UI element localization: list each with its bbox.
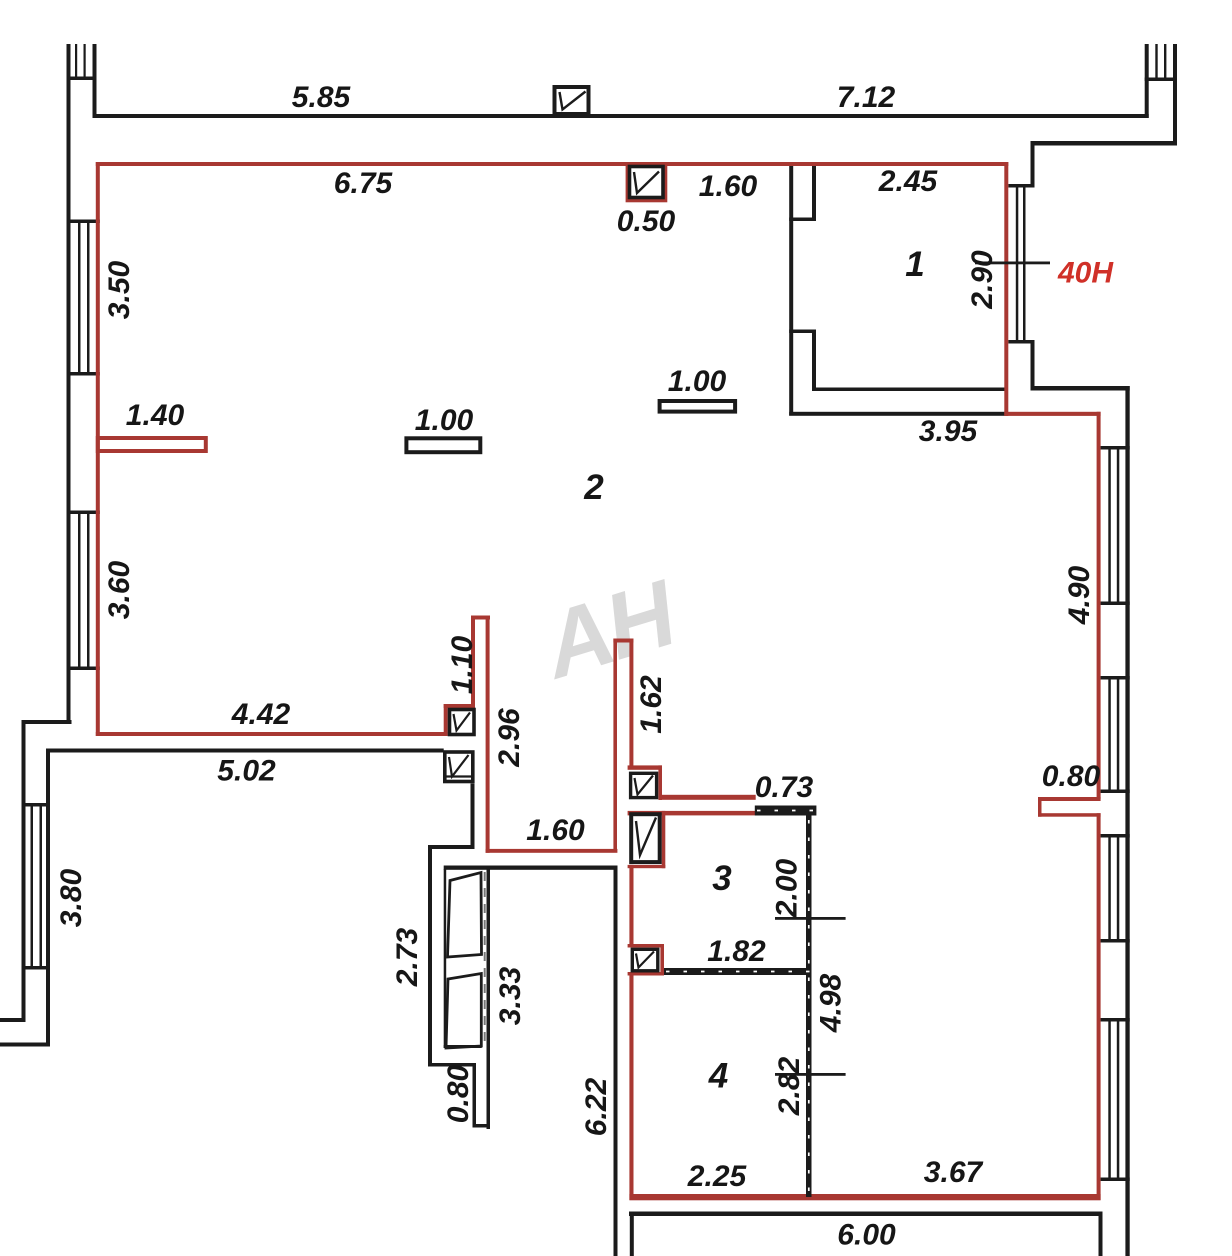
svg-text:3.67: 3.67 [924, 1156, 984, 1189]
svg-text:3: 3 [712, 859, 732, 898]
svg-text:2.45: 2.45 [878, 165, 939, 198]
svg-text:1.00: 1.00 [415, 404, 474, 437]
svg-text:2: 2 [583, 468, 604, 507]
svg-text:5.02: 5.02 [217, 755, 276, 788]
svg-text:1.10: 1.10 [446, 635, 479, 694]
svg-text:4: 4 [708, 1057, 728, 1096]
svg-text:3.95: 3.95 [919, 415, 979, 448]
svg-text:7.12: 7.12 [837, 81, 896, 114]
svg-text:3.33: 3.33 [494, 966, 527, 1025]
svg-text:3.60: 3.60 [103, 560, 136, 619]
svg-text:4.90: 4.90 [1063, 565, 1096, 625]
svg-text:1.82: 1.82 [707, 935, 766, 968]
svg-text:6.00: 6.00 [837, 1219, 896, 1252]
svg-text:2.90: 2.90 [966, 250, 999, 310]
svg-text:2.96: 2.96 [493, 708, 526, 768]
svg-text:2.25: 2.25 [687, 1160, 748, 1193]
svg-text:6.75: 6.75 [334, 167, 394, 200]
svg-text:6.22: 6.22 [580, 1077, 613, 1136]
svg-text:2.00: 2.00 [771, 858, 804, 918]
svg-text:1.00: 1.00 [668, 365, 727, 398]
svg-text:1.60: 1.60 [699, 170, 758, 203]
svg-text:1.62: 1.62 [635, 675, 668, 734]
svg-text:1.40: 1.40 [126, 399, 185, 432]
svg-text:4.98: 4.98 [815, 973, 848, 1033]
svg-text:0.50: 0.50 [617, 205, 676, 238]
svg-text:40Н: 40Н [1057, 257, 1114, 290]
svg-text:0.73: 0.73 [755, 771, 814, 804]
svg-text:3.50: 3.50 [103, 260, 136, 319]
svg-text:1: 1 [905, 245, 924, 284]
svg-text:0.80: 0.80 [1042, 760, 1101, 793]
svg-text:3.80: 3.80 [55, 868, 88, 927]
svg-text:2.82: 2.82 [773, 1056, 806, 1116]
svg-text:4.42: 4.42 [231, 698, 291, 731]
svg-text:2.73: 2.73 [391, 927, 424, 987]
svg-text:1.60: 1.60 [526, 814, 585, 847]
svg-text:0.80: 0.80 [442, 1064, 475, 1123]
svg-text:5.85: 5.85 [292, 81, 352, 114]
